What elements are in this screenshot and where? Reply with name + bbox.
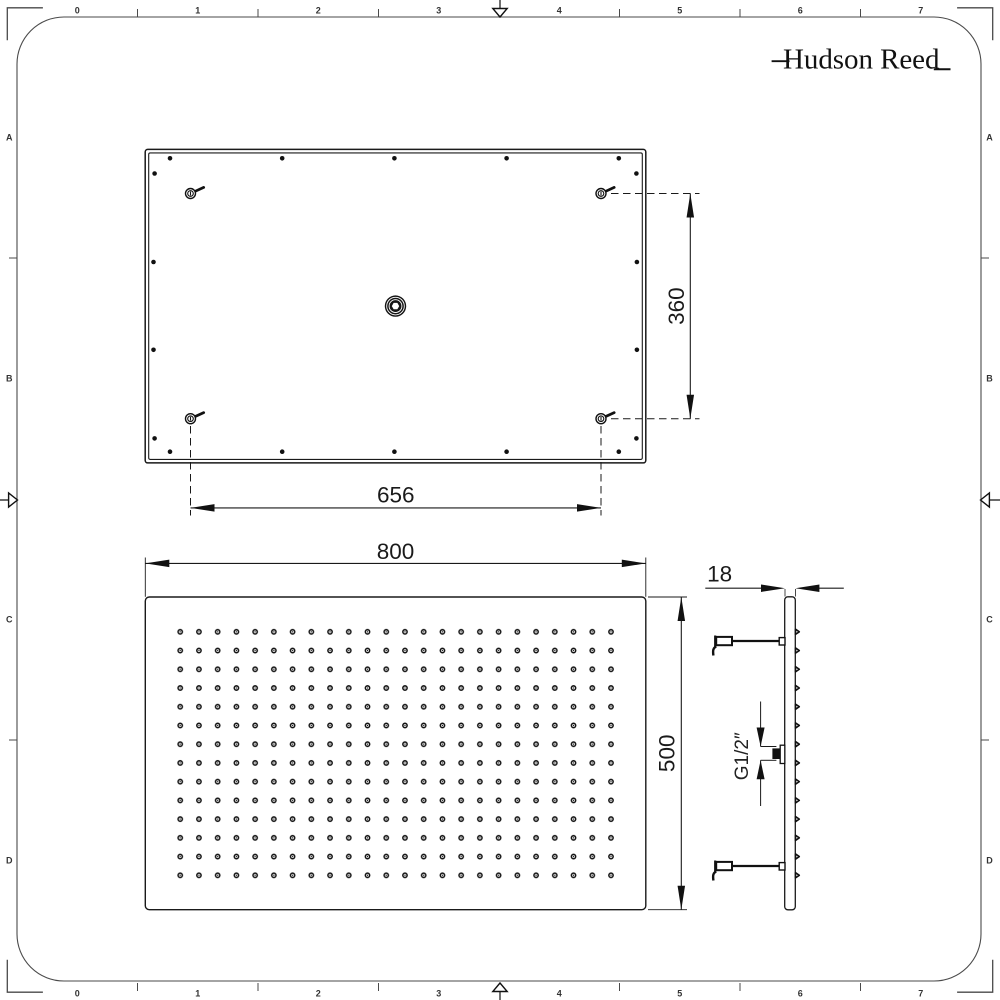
svg-text:3: 3 <box>436 6 441 16</box>
svg-text:656: 656 <box>377 483 415 508</box>
svg-text:6: 6 <box>798 6 803 16</box>
svg-text:D: D <box>986 856 993 866</box>
svg-text:0: 0 <box>75 989 80 999</box>
svg-text:A: A <box>986 133 993 143</box>
svg-text:0: 0 <box>75 6 80 16</box>
svg-text:6: 6 <box>798 989 803 999</box>
svg-text:3: 3 <box>436 989 441 999</box>
svg-text:C: C <box>986 615 993 625</box>
svg-text:7: 7 <box>918 989 923 999</box>
svg-text:800: 800 <box>377 539 415 564</box>
svg-text:5: 5 <box>677 989 682 999</box>
svg-text:C: C <box>6 615 13 625</box>
svg-text:500: 500 <box>654 735 679 773</box>
svg-text:Hudson Reed: Hudson Reed <box>783 44 940 76</box>
svg-text:2: 2 <box>316 989 321 999</box>
svg-text:7: 7 <box>918 6 923 16</box>
svg-text:B: B <box>986 374 993 384</box>
svg-text:G1/2″: G1/2″ <box>732 732 753 780</box>
svg-text:4: 4 <box>557 6 562 16</box>
svg-text:D: D <box>6 856 13 866</box>
svg-text:360: 360 <box>664 287 689 325</box>
svg-text:18: 18 <box>707 562 732 587</box>
svg-text:1: 1 <box>195 6 200 16</box>
svg-text:A: A <box>6 133 13 143</box>
svg-text:5: 5 <box>677 6 682 16</box>
svg-text:4: 4 <box>557 989 562 999</box>
svg-text:2: 2 <box>316 6 321 16</box>
svg-text:1: 1 <box>195 989 200 999</box>
svg-text:B: B <box>6 374 13 384</box>
